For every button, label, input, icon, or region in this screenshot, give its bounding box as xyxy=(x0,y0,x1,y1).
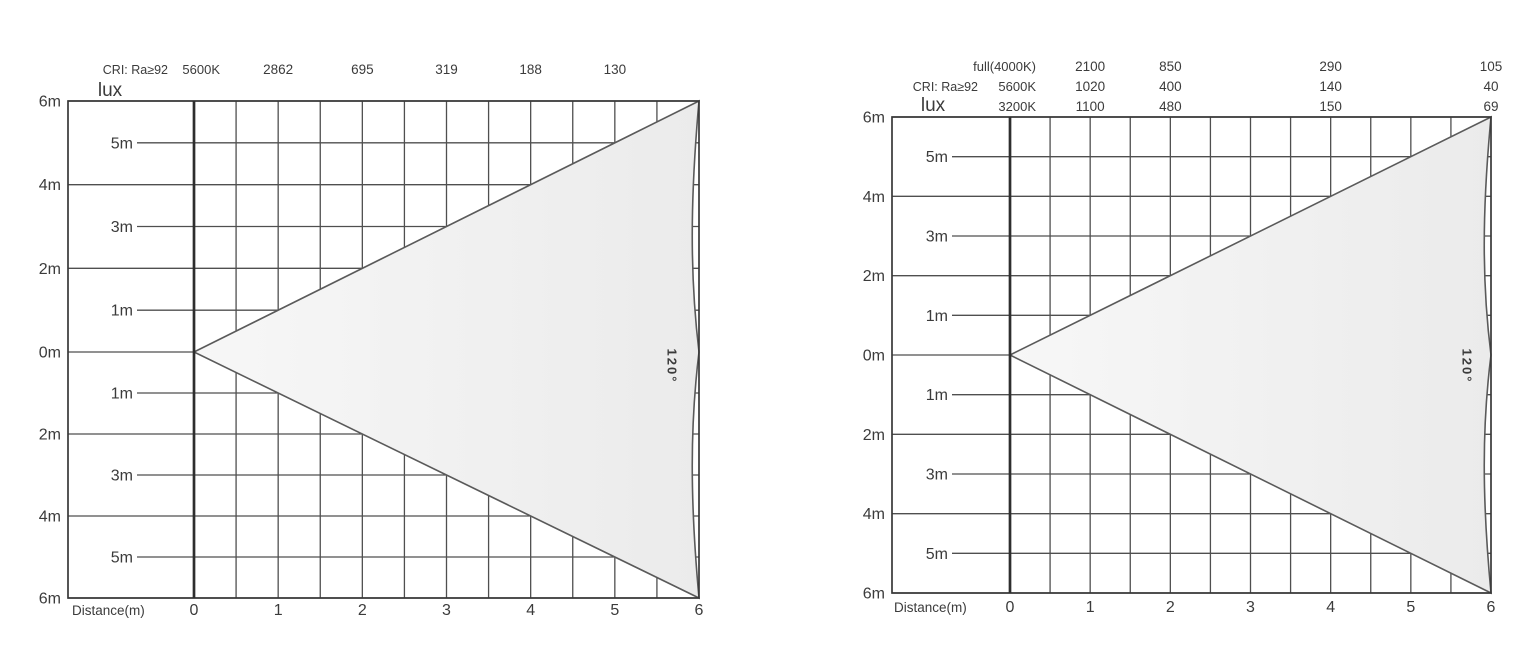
x-tick-label: 1 xyxy=(1086,599,1095,616)
lux-value-label: 69 xyxy=(1483,99,1498,114)
y-tick-outer-label: 6m xyxy=(863,110,885,127)
color-temp-label: 5600K xyxy=(182,62,220,77)
lux-value-label: 290 xyxy=(1319,59,1342,74)
y-tick-inner-label: 5m xyxy=(111,550,133,567)
y-tick-inner-label: 1m xyxy=(926,387,948,404)
x-tick-label: 2 xyxy=(358,602,367,619)
lux-value-label: 2100 xyxy=(1075,59,1105,74)
x-tick-label: 5 xyxy=(610,602,619,619)
lux-value-label: 480 xyxy=(1159,99,1182,114)
x-tick-label: 6 xyxy=(1487,599,1496,616)
lux-value-label: 1100 xyxy=(1076,99,1105,114)
y-tick-inner-label: 3m xyxy=(111,219,133,236)
x-tick-label: 3 xyxy=(442,602,451,619)
y-tick-inner-label: 1m xyxy=(111,386,133,403)
beam-angle-label: 120° xyxy=(1460,349,1475,384)
color-temp-label: 3200K xyxy=(998,99,1036,114)
lux-value-label: 140 xyxy=(1319,79,1342,94)
x-tick-label: 0 xyxy=(190,602,199,619)
color-temp-label: full(4000K) xyxy=(973,59,1036,74)
y-tick-outer-label: 6m xyxy=(863,586,885,603)
y-tick-outer-label: 4m xyxy=(863,189,885,206)
photometric-beam-diagram-page: 6m4m2m0m2m4m6m5m3m1m1m3m5mDistance(m)012… xyxy=(0,0,1533,651)
y-tick-outer-label: 4m xyxy=(39,509,61,526)
lux-value-label: 2862 xyxy=(263,62,293,77)
y-tick-inner-label: 5m xyxy=(926,546,948,563)
cri-label: CRI: Ra≥92 xyxy=(913,80,978,94)
y-tick-inner-label: 5m xyxy=(926,149,948,166)
y-tick-outer-label: 4m xyxy=(863,506,885,523)
x-tick-label: 3 xyxy=(1246,599,1255,616)
y-tick-outer-label: 4m xyxy=(39,177,61,194)
beam-angle-label: 120° xyxy=(665,349,680,384)
x-tick-label: 4 xyxy=(1326,599,1335,616)
lux-value-label: 400 xyxy=(1159,79,1182,94)
lux-value-label: 319 xyxy=(435,62,458,77)
y-tick-inner-label: 3m xyxy=(926,467,948,484)
lux-value-label: 850 xyxy=(1159,59,1182,74)
lux-value-label: 1020 xyxy=(1075,79,1105,94)
y-tick-outer-label: 2m xyxy=(39,427,61,444)
y-tick-outer-label: 2m xyxy=(863,427,885,444)
x-tick-label: 6 xyxy=(695,602,704,619)
y-tick-inner-label: 3m xyxy=(926,229,948,246)
y-tick-outer-label: 0m xyxy=(39,345,61,362)
y-tick-outer-label: 6m xyxy=(39,94,61,111)
y-tick-inner-label: 1m xyxy=(111,303,133,320)
lux-value-label: 150 xyxy=(1319,99,1342,114)
lux-value-label: 188 xyxy=(519,62,542,77)
lux-value-label: 40 xyxy=(1483,79,1498,94)
x-tick-label: 4 xyxy=(526,602,535,619)
charts-group: 6m4m2m0m2m4m6m5m3m1m1m3m5mDistance(m)012… xyxy=(39,59,1503,619)
x-tick-label: 1 xyxy=(274,602,283,619)
lux-value-label: 695 xyxy=(351,62,374,77)
color-temp-label: 5600K xyxy=(998,79,1036,94)
distance-axis-label: Distance(m) xyxy=(72,603,145,618)
y-tick-inner-label: 5m xyxy=(111,135,133,152)
y-tick-inner-label: 1m xyxy=(926,308,948,325)
lux-value-label: 130 xyxy=(604,62,627,77)
x-tick-label: 5 xyxy=(1406,599,1415,616)
lux-unit-label: lux xyxy=(921,95,946,116)
cri-label: CRI: Ra≥92 xyxy=(103,63,168,77)
y-tick-outer-label: 0m xyxy=(863,348,885,365)
y-tick-outer-label: 2m xyxy=(863,268,885,285)
beam-distribution-canvas: 6m4m2m0m2m4m6m5m3m1m1m3m5mDistance(m)012… xyxy=(0,0,1533,651)
y-tick-outer-label: 2m xyxy=(39,261,61,278)
x-tick-label: 0 xyxy=(1006,599,1015,616)
y-tick-inner-label: 3m xyxy=(111,468,133,485)
x-tick-label: 2 xyxy=(1166,599,1175,616)
y-tick-outer-label: 6m xyxy=(39,591,61,608)
lux-value-label: 105 xyxy=(1480,59,1503,74)
lux-unit-label: lux xyxy=(98,80,123,101)
distance-axis-label: Distance(m) xyxy=(894,600,967,615)
